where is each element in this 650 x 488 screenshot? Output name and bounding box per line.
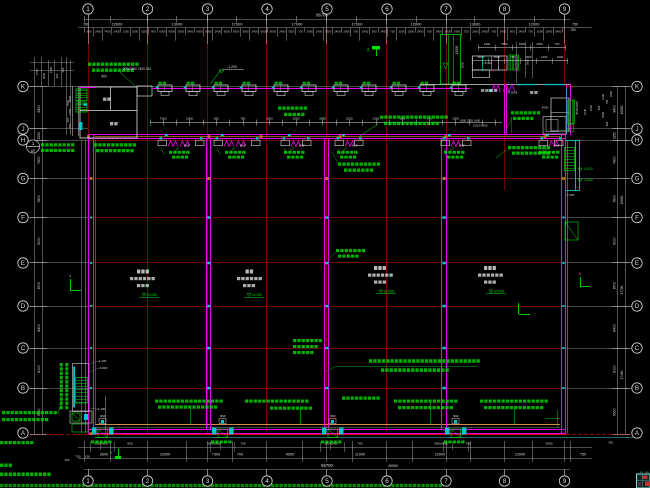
svg-text:3000: 3000	[266, 116, 273, 120]
svg-text:6000: 6000	[196, 29, 203, 33]
svg-text:2400: 2400	[555, 29, 562, 33]
svg-text:750: 750	[608, 441, 613, 445]
svg-text:2250: 2250	[37, 132, 41, 140]
svg-text:6000: 6000	[233, 29, 240, 33]
svg-text:3: 3	[206, 478, 210, 485]
svg-text:8400: 8400	[37, 105, 41, 113]
svg-text:12000: 12000	[435, 452, 445, 456]
svg-text:AP: AP	[31, 149, 36, 153]
svg-text:±0.000: ±0.000	[147, 293, 157, 297]
svg-text:1300: 1300	[372, 116, 379, 120]
svg-text:-0.020: -0.020	[583, 167, 593, 171]
svg-text:700: 700	[240, 442, 245, 446]
svg-text:3000: 3000	[178, 29, 185, 33]
svg-text:1800 2320 1400: 1800 2320 1400	[460, 118, 481, 122]
svg-text:1500: 1500	[293, 116, 300, 120]
svg-text:2900: 2900	[472, 29, 479, 33]
svg-text:F: F	[635, 215, 639, 222]
svg-text:7: 7	[444, 6, 448, 13]
svg-text:MMF: MMF	[299, 143, 305, 147]
svg-text:2400: 2400	[500, 29, 507, 33]
svg-text:750: 750	[390, 29, 395, 33]
svg-text:150: 150	[85, 454, 90, 458]
svg-text:2900: 2900	[525, 55, 532, 59]
svg-text:11000: 11000	[355, 452, 365, 456]
svg-text:2400: 2400	[251, 29, 258, 33]
svg-text:1500: 1500	[519, 42, 526, 46]
svg-text:2100: 2100	[589, 104, 593, 111]
svg-text:2400: 2400	[187, 29, 194, 33]
svg-text:300: 300	[66, 117, 70, 122]
svg-text:2400: 2400	[518, 29, 525, 33]
svg-text:5: 5	[325, 478, 329, 485]
svg-text:1 51.42: 1 51.42	[482, 61, 492, 65]
svg-text:MMF: MMF	[220, 415, 226, 418]
svg-text:9: 9	[563, 6, 567, 13]
svg-text:MMF: MMF	[240, 143, 246, 147]
svg-text:2400: 2400	[435, 29, 442, 33]
svg-text:2: 2	[146, 6, 150, 13]
svg-text:6000: 6000	[169, 29, 176, 33]
svg-text:C: C	[21, 345, 26, 352]
svg-text:7800: 7800	[612, 156, 616, 164]
svg-text:G: G	[21, 176, 26, 183]
svg-text:8400: 8400	[612, 105, 616, 113]
svg-text:2: 2	[146, 478, 150, 485]
svg-text:2300: 2300	[186, 116, 193, 120]
svg-text:1500: 1500	[452, 116, 459, 120]
svg-text:15600: 15600	[620, 195, 624, 204]
svg-text:750: 750	[605, 99, 609, 104]
svg-text:4000: 4000	[461, 61, 465, 68]
svg-text:6: 6	[385, 6, 389, 13]
svg-text:±0.000: ±0.000	[252, 293, 262, 297]
svg-text:2400: 2400	[362, 29, 369, 33]
svg-text:6000: 6000	[270, 29, 277, 33]
svg-text:B: B	[21, 385, 25, 392]
svg-text:700: 700	[353, 29, 358, 33]
svg-text:7400: 7400	[104, 29, 111, 33]
svg-text:4000: 4000	[542, 106, 549, 110]
svg-text:2350: 2350	[536, 42, 543, 46]
svg-text:700: 700	[465, 442, 470, 446]
svg-text:96700: 96700	[321, 463, 333, 468]
svg-text:8700: 8700	[37, 282, 41, 290]
svg-text:5000: 5000	[478, 55, 485, 59]
svg-text:2400: 2400	[215, 29, 222, 33]
svg-text:J: J	[21, 126, 24, 133]
svg-text:17000: 17000	[352, 21, 364, 26]
svg-text:4: 4	[265, 6, 269, 13]
svg-text:8400: 8400	[37, 324, 41, 332]
svg-text:1000: 1000	[399, 29, 406, 33]
svg-text:G: G	[635, 176, 640, 183]
svg-text:2400: 2400	[68, 108, 72, 115]
svg-text:2400: 2400	[380, 29, 387, 33]
svg-text:750: 750	[528, 29, 533, 33]
svg-text:3150: 3150	[141, 29, 148, 33]
svg-text:2700: 2700	[35, 68, 39, 75]
svg-text:8100: 8100	[612, 365, 616, 373]
svg-text:2100: 2100	[601, 94, 605, 100]
svg-text:4: 4	[265, 478, 269, 485]
svg-text:2140: 2140	[583, 108, 587, 115]
svg-text:8: 8	[503, 478, 507, 485]
svg-text:7300: 7300	[212, 452, 220, 456]
svg-text:E: E	[21, 260, 25, 267]
svg-text:5250: 5250	[601, 112, 605, 118]
svg-text:3000: 3000	[319, 116, 326, 120]
svg-text:750: 750	[570, 28, 576, 32]
svg-text:-2.100: -2.100	[97, 407, 106, 411]
svg-text:H: H	[635, 137, 639, 144]
svg-text:750: 750	[75, 454, 80, 458]
svg-text:-0.600: -0.600	[99, 366, 108, 370]
svg-text:2900: 2900	[343, 29, 350, 33]
svg-text:3300: 3300	[557, 55, 564, 59]
svg-text:300: 300	[55, 73, 59, 78]
svg-text:8700: 8700	[612, 282, 616, 290]
svg-text:8: 8	[503, 6, 507, 13]
svg-text:750: 750	[427, 29, 432, 33]
svg-text:2400: 2400	[279, 29, 286, 33]
svg-text:C: C	[635, 345, 640, 352]
svg-text:7800: 7800	[37, 156, 41, 164]
svg-text:6: 6	[385, 478, 389, 485]
svg-text:700: 700	[237, 452, 243, 456]
svg-text:300x2400 2400 340: 300x2400 2400 340	[123, 67, 151, 71]
svg-text:2400: 2400	[417, 29, 424, 33]
svg-text:1: 1	[86, 6, 90, 13]
svg-text:H: H	[21, 137, 25, 144]
svg-text:900: 900	[87, 29, 92, 33]
svg-text:17000: 17000	[232, 21, 244, 26]
svg-text:±0.000: ±0.000	[494, 290, 504, 294]
svg-text:9300: 9300	[612, 408, 616, 416]
svg-text:1400: 1400	[316, 29, 323, 33]
svg-text:600: 600	[127, 442, 132, 446]
svg-text:E: E	[635, 260, 639, 267]
svg-text:MMF: MMF	[352, 143, 358, 147]
svg-text:13000: 13000	[470, 21, 482, 26]
svg-text:MMF: MMF	[184, 143, 190, 147]
svg-text:13000: 13000	[515, 452, 525, 456]
svg-text:750: 750	[240, 116, 245, 120]
svg-text:5: 5	[325, 6, 329, 13]
svg-text:17700: 17700	[620, 285, 624, 294]
svg-text:300: 300	[605, 121, 609, 126]
svg-text:17000: 17000	[292, 21, 304, 26]
svg-text:2400: 2400	[481, 29, 488, 33]
svg-text:6000: 6000	[205, 29, 212, 33]
svg-text:700: 700	[298, 29, 303, 33]
svg-text:1400: 1400	[541, 55, 548, 59]
svg-text:9: 9	[563, 478, 567, 485]
svg-text:1000: 1000	[484, 42, 491, 46]
svg-text:900: 900	[510, 29, 515, 33]
svg-text:F: F	[21, 215, 25, 222]
svg-text:150: 150	[83, 22, 89, 26]
svg-text:MMF: MMF	[453, 415, 459, 418]
svg-text:2900: 2900	[307, 29, 314, 33]
svg-text:2900: 2900	[408, 29, 415, 33]
svg-text:150: 150	[65, 458, 70, 462]
svg-text:9000: 9000	[612, 237, 616, 245]
svg-text:MMF: MMF	[459, 143, 465, 147]
svg-text:750: 750	[572, 22, 578, 26]
svg-text:1: 1	[579, 272, 581, 276]
svg-text:12000: 12000	[160, 452, 170, 456]
svg-text:13000: 13000	[172, 21, 184, 26]
svg-text:13000: 13000	[455, 45, 459, 54]
svg-text:7800: 7800	[37, 195, 41, 203]
svg-text:12320 1400: 12320 1400	[473, 124, 488, 128]
svg-text:8400: 8400	[612, 324, 616, 332]
svg-text:900: 900	[372, 29, 377, 33]
svg-text:700: 700	[491, 29, 496, 33]
svg-text:2400: 2400	[454, 29, 461, 33]
svg-text:750: 750	[464, 29, 469, 33]
svg-text:1350: 1350	[123, 29, 130, 33]
svg-text:6000: 6000	[224, 29, 231, 33]
svg-text:900: 900	[101, 75, 107, 79]
svg-text:7: 7	[444, 478, 448, 485]
svg-text:2250: 2250	[612, 132, 616, 140]
svg-text:3600: 3600	[100, 452, 108, 456]
svg-text:1: 1	[86, 478, 90, 485]
svg-text:500: 500	[68, 123, 72, 128]
svg-text:49500: 49500	[388, 464, 398, 468]
svg-text:3300: 3300	[445, 29, 452, 33]
svg-text:700: 700	[357, 442, 362, 446]
svg-text:3000: 3000	[546, 442, 553, 446]
svg-text:-7.025: -7.025	[566, 193, 575, 197]
svg-text:750: 750	[555, 42, 560, 46]
svg-text:300: 300	[214, 116, 219, 120]
svg-text:7300: 7300	[160, 116, 167, 120]
svg-text:8100: 8100	[37, 365, 41, 373]
svg-text:750: 750	[510, 55, 515, 59]
svg-text:2250: 2250	[609, 91, 613, 97]
svg-text:10650: 10650	[620, 105, 624, 114]
svg-text:-1.200: -1.200	[227, 65, 237, 69]
svg-text:9600: 9600	[286, 452, 294, 456]
svg-text:-2.100: -2.100	[98, 359, 107, 363]
svg-text:75 2625: 75 2625	[507, 91, 518, 95]
svg-text:900: 900	[151, 29, 156, 33]
svg-text:1500: 1500	[49, 66, 53, 73]
svg-text:MMF: MMF	[330, 415, 336, 418]
svg-text:500: 500	[61, 67, 65, 72]
svg-text:3030x1900: 3030x1900	[575, 101, 579, 115]
svg-text:J: J	[635, 126, 638, 133]
svg-text:3000: 3000	[242, 29, 249, 33]
svg-text:9000: 9000	[37, 237, 41, 245]
svg-text:2400: 2400	[113, 29, 120, 33]
svg-text:3300: 3300	[288, 29, 295, 33]
svg-text:MMF: MMF	[554, 143, 560, 147]
svg-text:2250: 2250	[346, 116, 353, 120]
svg-text:D: D	[635, 303, 640, 310]
svg-text:D: D	[21, 303, 26, 310]
svg-text:1000: 1000	[537, 29, 544, 33]
svg-text:±0.000: ±0.000	[384, 290, 394, 294]
svg-text:7800: 7800	[612, 195, 616, 203]
svg-text:17400: 17400	[620, 370, 624, 379]
svg-text:2400: 2400	[95, 29, 102, 33]
svg-text:2900: 2900	[546, 29, 553, 33]
svg-text:6000: 6000	[159, 29, 166, 33]
svg-text:2400: 2400	[334, 29, 341, 33]
svg-text:3300: 3300	[132, 29, 139, 33]
svg-text:5500: 5500	[501, 42, 508, 46]
svg-text:1: 1	[69, 274, 71, 278]
svg-text:3300: 3300	[325, 29, 332, 33]
svg-text:3000: 3000	[526, 58, 530, 65]
svg-text:7500: 7500	[66, 99, 70, 106]
svg-text:B: B	[635, 385, 639, 392]
svg-text:750: 750	[580, 452, 586, 456]
svg-text:3: 3	[206, 6, 210, 13]
svg-text:1500: 1500	[494, 55, 501, 59]
svg-text:1: 1	[32, 141, 35, 146]
svg-text:450: 450	[597, 105, 601, 110]
svg-text:-1.500: -1.500	[583, 178, 593, 182]
svg-text:2000: 2000	[42, 72, 46, 79]
svg-text:12000: 12000	[112, 21, 124, 26]
